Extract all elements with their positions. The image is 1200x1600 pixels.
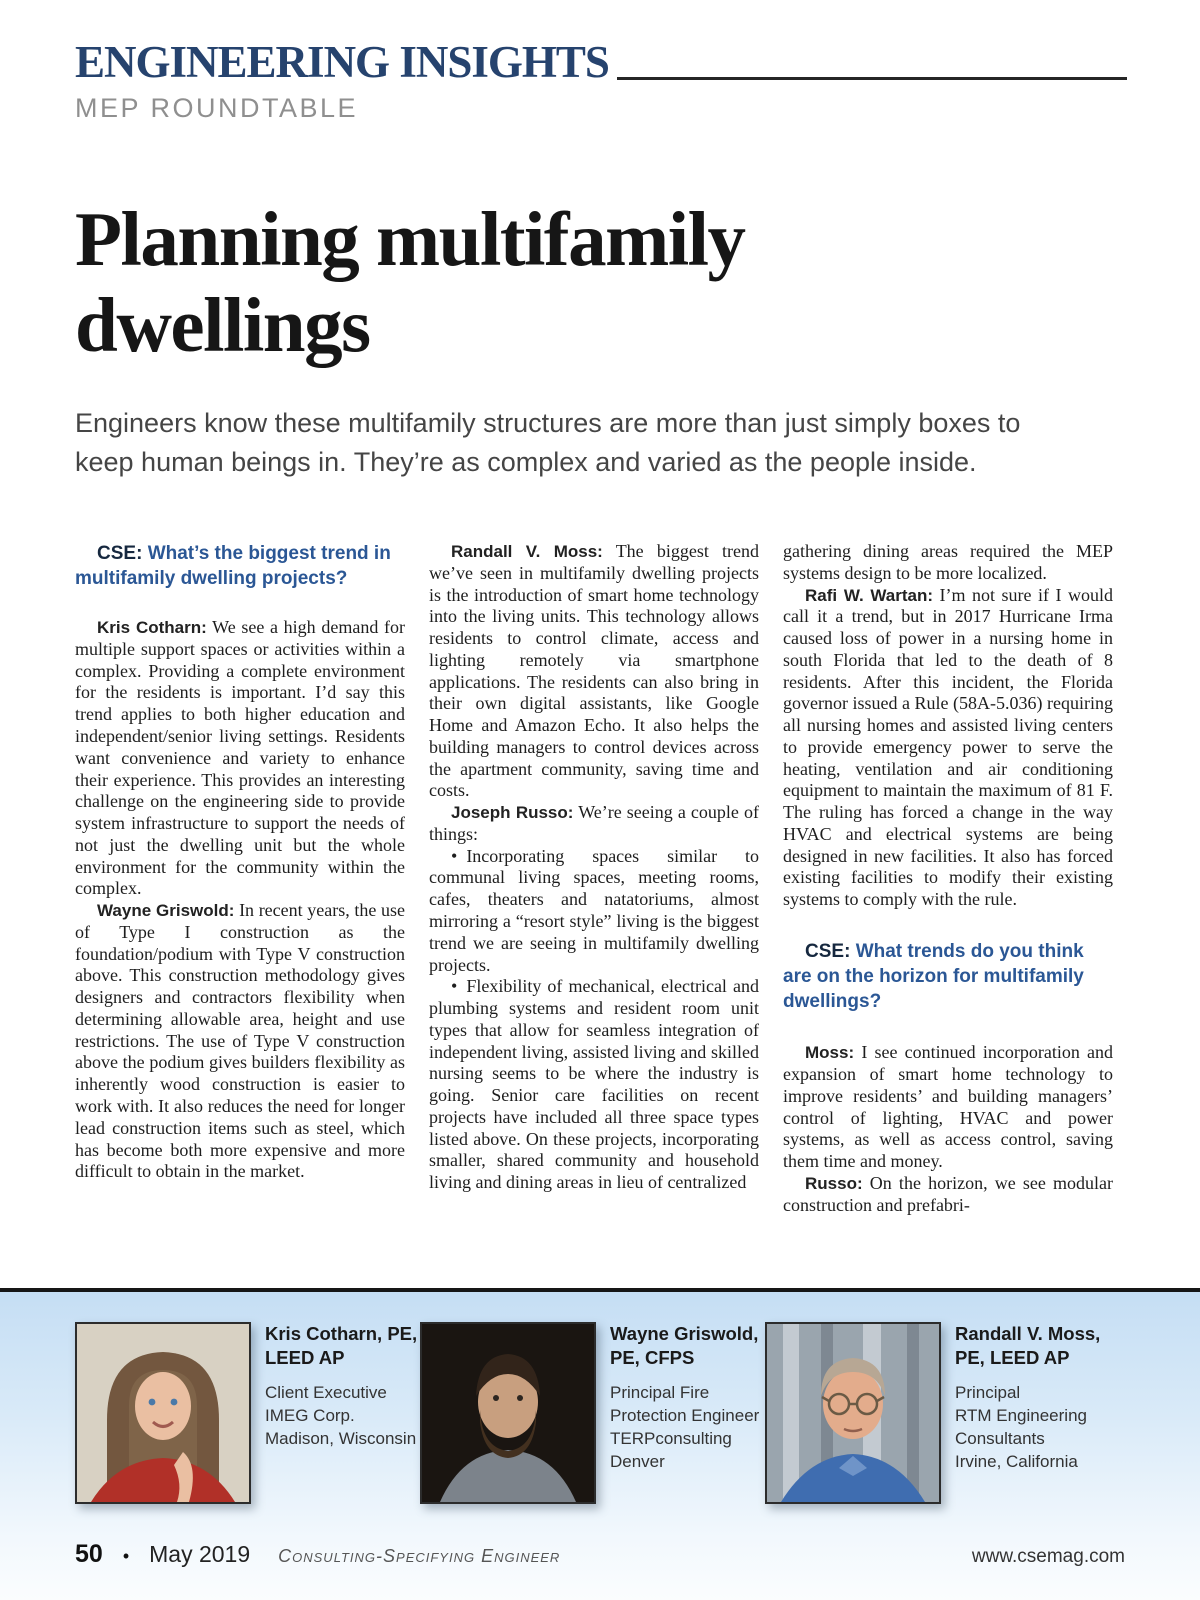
speaker-name: Wayne Griswold: [97,901,234,920]
portrait-man-beard [422,1324,594,1502]
bio-details: Client Executive IMEG Corp. Madison, Wis… [265,1382,420,1451]
portrait-man-glasses [767,1324,939,1502]
article-title: Planning multifamily dwellings [75,196,1035,368]
bio-name: Wayne Griswold, PE, CFPS [610,1322,765,1370]
section-title: ENGINEERING INSIGHTS [75,40,609,85]
paragraph-wartan: Rafi W. Wartan: I’m not sure if I would … [783,585,1113,911]
speaker-name: Moss: [805,1043,854,1062]
masthead-rule [617,77,1127,80]
section-subtitle: MEP ROUNDTABLE [75,93,1127,124]
article-columns: CSE: What’s the biggest trend in multifa… [75,541,1113,1216]
paragraph-continuation: gathering dining areas required the MEP … [783,541,1113,585]
masthead: ENGINEERING INSIGHTS MEP ROUNDTABLE [75,40,1127,124]
page-number: 50 [75,1540,103,1569]
speaker-name: Randall V. Moss: [451,542,603,561]
speaker-name: Russo: [805,1174,863,1193]
bio-wayne-griswold: Wayne Griswold, PE, CFPS Principal Fire … [420,1322,765,1504]
bullet-item-1: •Incorporating spaces similar to communa… [429,846,759,977]
page-footer: 50 • May 2019 Consulting-Specifying Engi… [75,1540,1125,1569]
bio-name: Randall V. Moss, PE, LEED AP [955,1322,1110,1370]
bullet-icon: • [451,846,466,866]
bio-details: Principal Fire Protection Engineer TERPc… [610,1382,765,1474]
website-link[interactable]: www.csemag.com [972,1546,1125,1568]
paragraph-text: The biggest trend we’ve seen in multifam… [429,541,759,800]
article-deck: Engineers know these multifamily structu… [75,404,1080,482]
column-2: Randall V. Moss: The biggest trend we’ve… [429,541,759,1216]
column-1: CSE: What’s the biggest trend in multifa… [75,541,405,1216]
paragraph-text: We see a high demand for multiple suppor… [75,617,405,898]
paragraph-text: gathering dining areas required the MEP … [783,541,1113,583]
paragraph-text: I’m not sure if I would call it a trend,… [783,585,1113,910]
question-label: CSE: [805,941,850,962]
bio-kris-cotharn: Kris Cotharn, PE, LEED AP Client Executi… [75,1322,420,1504]
issue-date: May 2019 [149,1541,250,1568]
portrait-randall-moss-photo [765,1322,941,1504]
question-label: CSE: [97,543,142,564]
footer-separator-dot: • [123,1546,129,1567]
bullet-icon: • [451,976,466,996]
paragraph-russo: Joseph Russo: We’re seeing a couple of t… [429,802,759,846]
speaker-name: Kris Cotharn: [97,618,207,637]
column-3: gathering dining areas required the MEP … [783,541,1113,1216]
magazine-page: ENGINEERING INSIGHTS MEP ROUNDTABLE Plan… [0,0,1200,1600]
portrait-kris-cotharn-photo [75,1322,251,1504]
magazine-name: Consulting-Specifying Engineer [278,1546,560,1567]
bullet-item-2: •Flexibility of mechanical, electrical a… [429,976,759,1194]
portrait-wayne-griswold-photo [420,1322,596,1504]
question-heading-1: CSE: What’s the biggest trend in multifa… [75,541,405,591]
question-heading-2: CSE: What trends do you think are on the… [783,939,1113,1014]
speaker-name: Joseph Russo: [451,803,573,822]
paragraph-griswold: Wayne Griswold: In recent years, the use… [75,900,405,1183]
paragraph-text: In recent years, the use of Type I const… [75,900,405,1181]
paragraph-cotharn: Kris Cotharn: We see a high demand for m… [75,617,405,900]
bio-details: Principal RTM Engineering Consultants Ir… [955,1382,1110,1474]
paragraph-russo-2: Russo: On the horizon, we see modular co… [783,1173,1113,1217]
paragraph-moss: Randall V. Moss: The biggest trend we’ve… [429,541,759,802]
bullet-text: Flexibility of mechanical, electrical an… [429,976,759,1192]
speaker-name: Rafi W. Wartan: [805,586,933,605]
portrait-woman-red-top [77,1324,249,1502]
bio-randall-moss: Randall V. Moss, PE, LEED AP Principal R… [765,1322,1110,1504]
paragraph-moss-2: Moss: I see continued incorporation and … [783,1042,1113,1173]
bio-name: Kris Cotharn, PE, LEED AP [265,1322,420,1370]
bullet-text: Incorporating spaces similar to communal… [429,846,759,975]
